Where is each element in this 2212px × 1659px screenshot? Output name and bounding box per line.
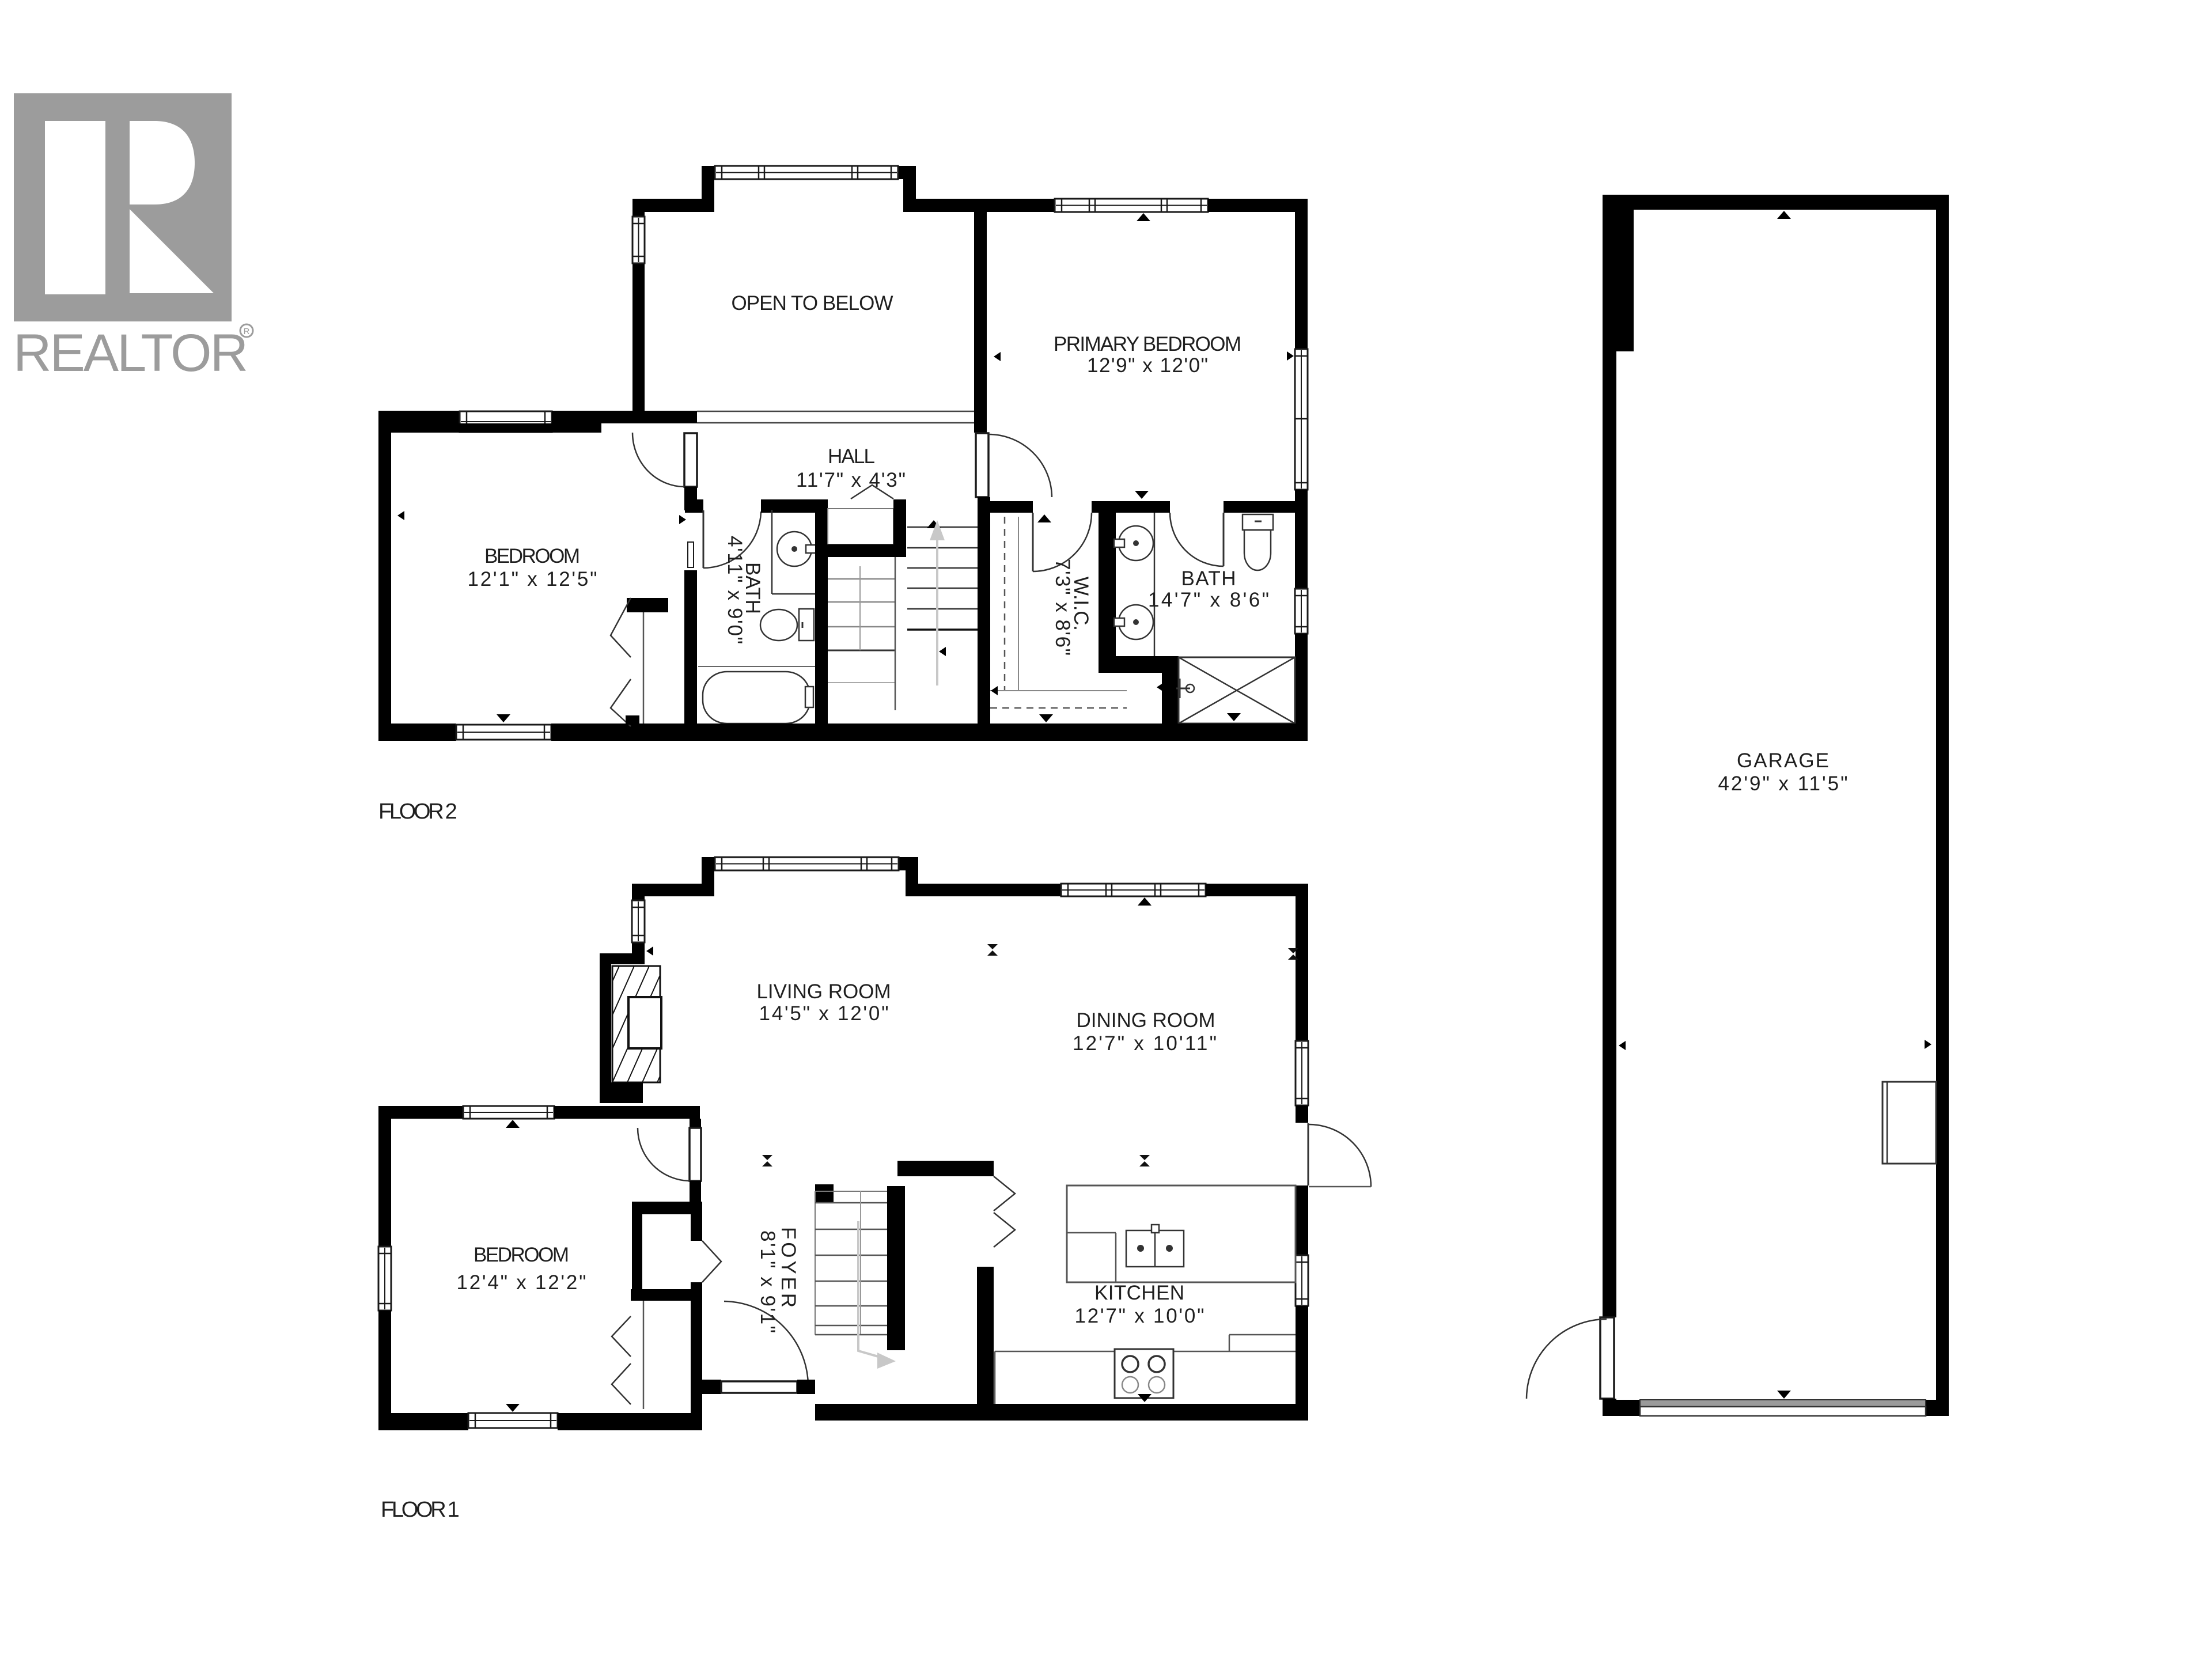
svg-text:42'9" x 11'5": 42'9" x 11'5" xyxy=(1718,772,1848,795)
svg-text:12'9" x 12'0": 12'9" x 12'0" xyxy=(1087,354,1208,377)
svg-text:FLOOR 1: FLOOR 1 xyxy=(381,1498,459,1522)
svg-text:14'5" x 12'0": 14'5" x 12'0" xyxy=(759,1002,889,1025)
svg-text:12'1" x 12'5": 12'1" x 12'5" xyxy=(468,568,597,590)
svg-text:BEDROOM: BEDROOM xyxy=(474,1244,569,1266)
svg-text:HALL: HALL xyxy=(828,445,875,468)
svg-text:12'7" x 10'0": 12'7" x 10'0" xyxy=(1075,1305,1205,1327)
svg-text:12'4" x 12'2": 12'4" x 12'2" xyxy=(457,1271,586,1294)
svg-text:DINING ROOM: DINING ROOM xyxy=(1077,1009,1215,1032)
svg-text:FOYER: FOYER xyxy=(777,1227,800,1308)
svg-text:OPEN TO BELOW: OPEN TO BELOW xyxy=(732,292,893,315)
svg-text:R: R xyxy=(244,327,250,336)
svg-text:8'1" x 9'1": 8'1" x 9'1" xyxy=(756,1230,779,1333)
svg-text:PRIMARY BEDROOM: PRIMARY BEDROOM xyxy=(1054,333,1241,355)
svg-text:7'3" x 8'6": 7'3" x 8'6" xyxy=(1051,559,1074,656)
svg-text:11'7" x 4'3": 11'7" x 4'3" xyxy=(796,469,906,491)
svg-text:BEDROOM: BEDROOM xyxy=(484,545,580,567)
svg-text:FLOOR 2: FLOOR 2 xyxy=(378,800,457,824)
svg-text:LIVING ROOM: LIVING ROOM xyxy=(757,980,891,1003)
svg-text:KITCHEN: KITCHEN xyxy=(1094,1282,1184,1304)
svg-text:REALTOR: REALTOR xyxy=(13,324,247,382)
svg-text:BATH: BATH xyxy=(1181,567,1236,590)
